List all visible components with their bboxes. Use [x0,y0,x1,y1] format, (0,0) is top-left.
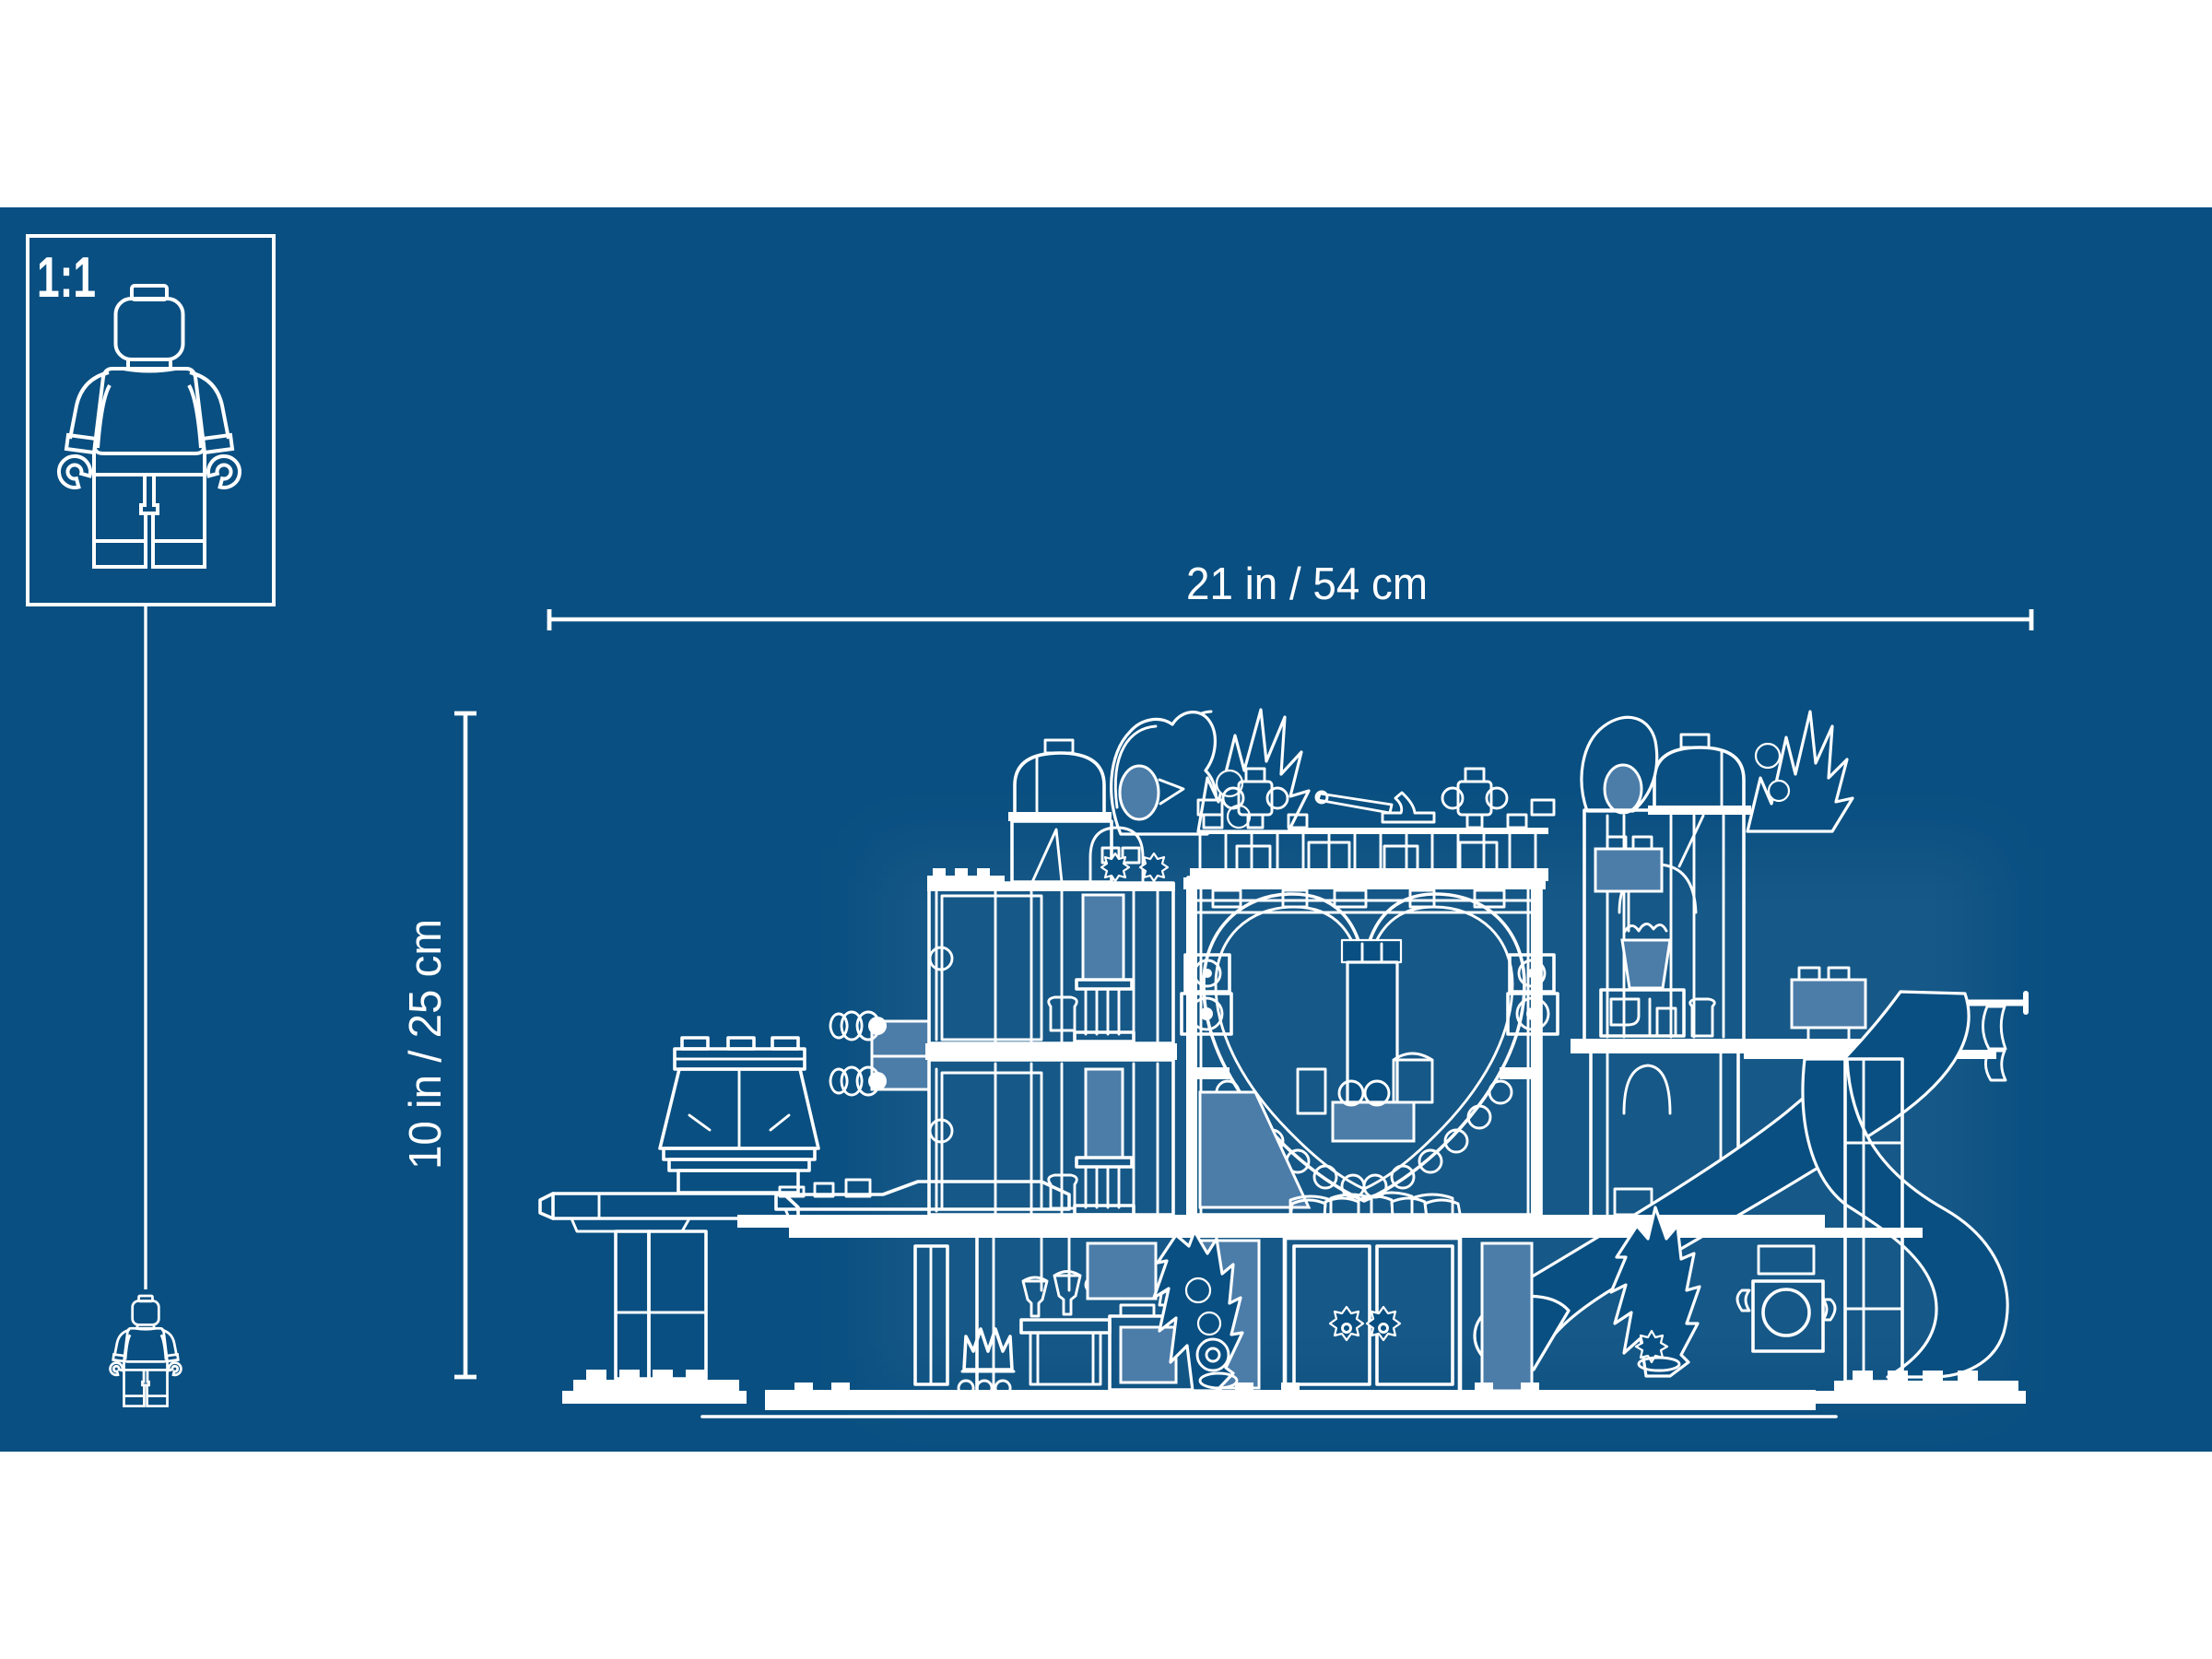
svg-text:10 in / 25 cm: 10 in / 25 cm [401,919,451,1170]
svg-text:21 in / 54 cm: 21 in / 54 cm [1186,559,1428,609]
svg-text:1:1: 1:1 [37,246,96,310]
